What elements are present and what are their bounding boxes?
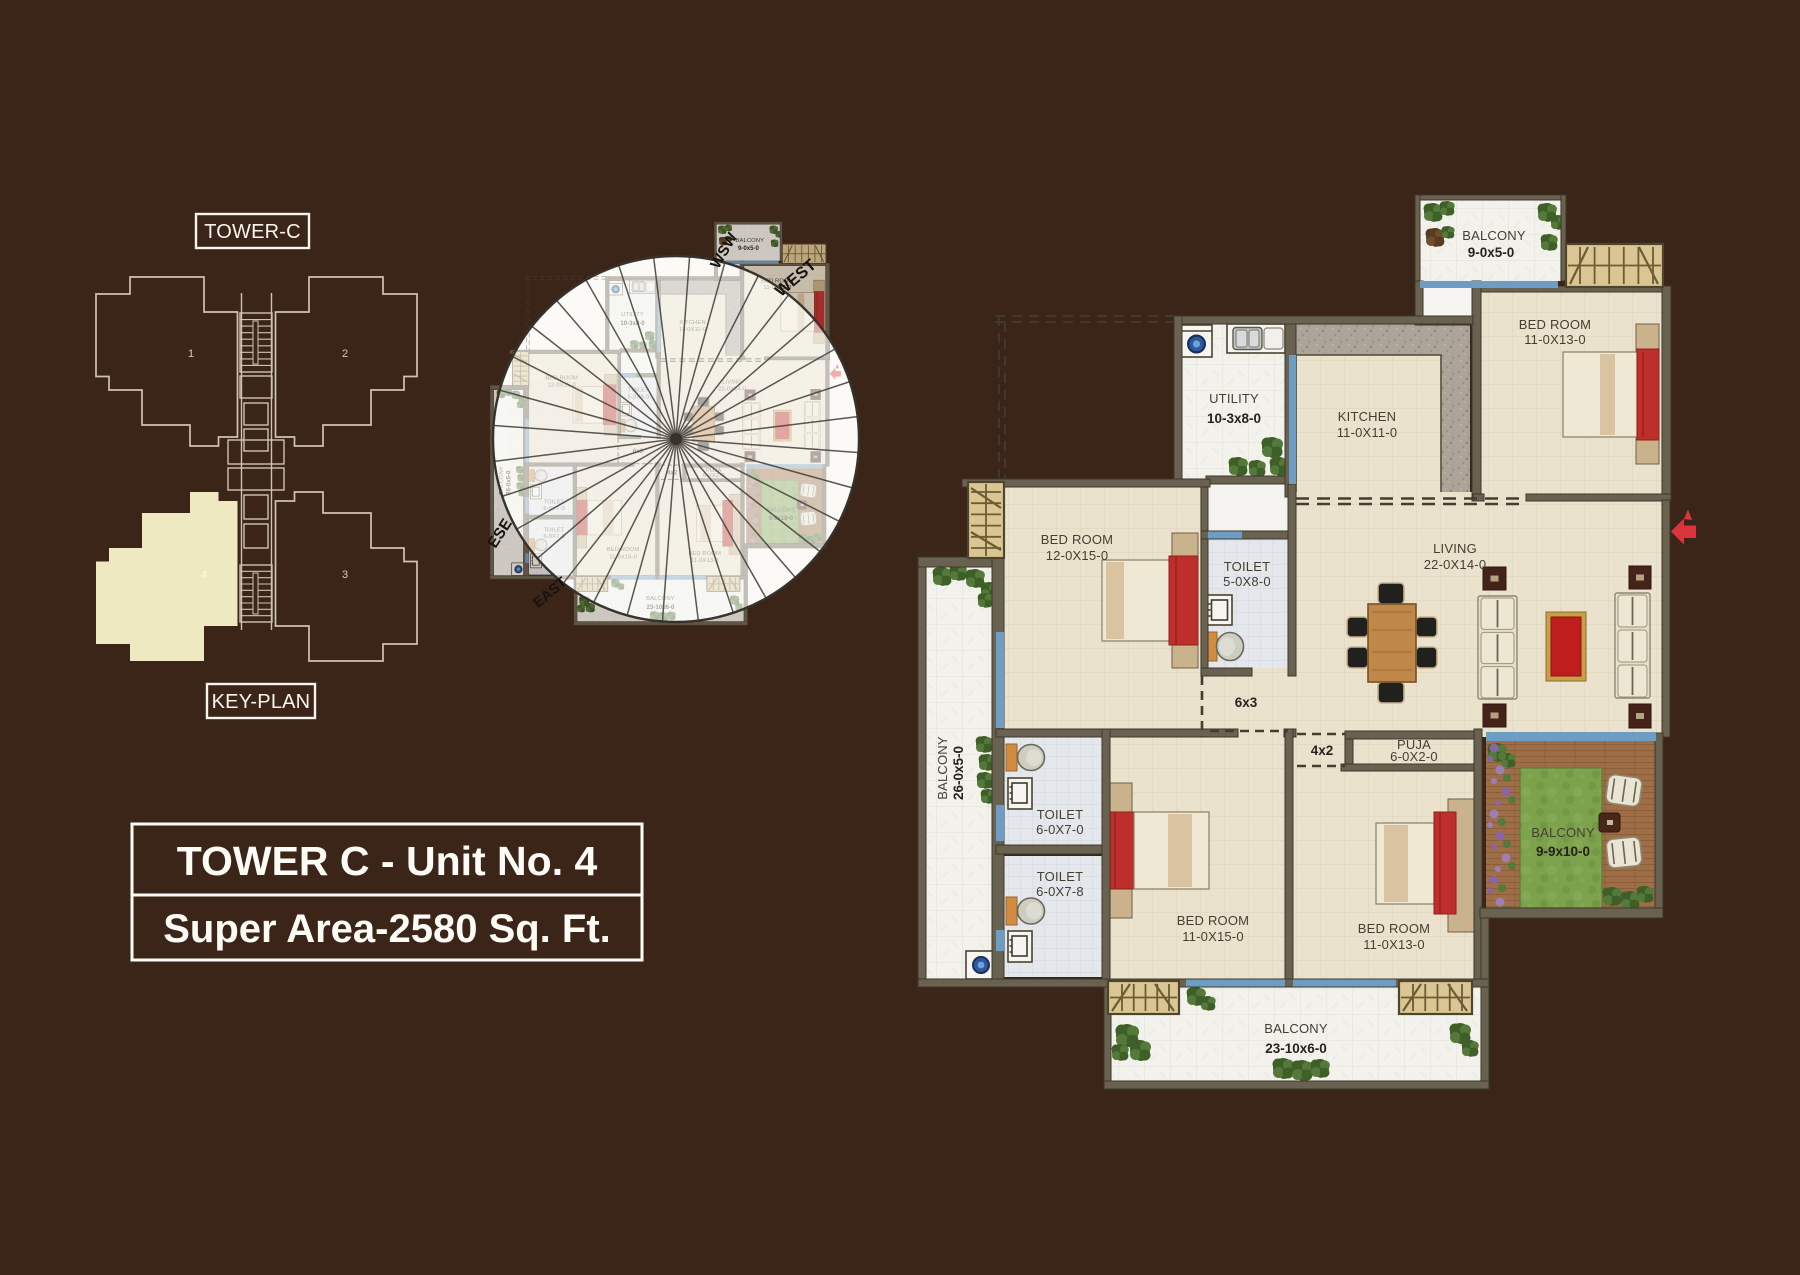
svg-text:11-0X15-0: 11-0X15-0 [1182,929,1244,944]
svg-text:22-0X14-0: 22-0X14-0 [1424,557,1487,572]
svg-text:26-0x5-0: 26-0x5-0 [951,746,966,800]
svg-text:UTILITY: UTILITY [1209,391,1259,406]
svg-text:BED ROOM: BED ROOM [1177,913,1249,928]
svg-text:KITCHEN: KITCHEN [1338,409,1396,424]
svg-text:11-0X13-0: 11-0X13-0 [1524,332,1586,347]
svg-text:6-0X7-8: 6-0X7-8 [1036,884,1084,899]
svg-text:KEY-PLAN: KEY-PLAN [212,691,311,713]
svg-text:BALCONY: BALCONY [1462,228,1526,243]
svg-text:BALCONY: BALCONY [1531,825,1595,840]
svg-text:4: 4 [201,569,207,581]
svg-text:Super Area-2580 Sq. Ft.: Super Area-2580 Sq. Ft. [163,907,611,951]
svg-text:9-9x10-0: 9-9x10-0 [1536,844,1590,859]
svg-text:4x2: 4x2 [1311,743,1334,758]
svg-text:2: 2 [342,348,348,360]
svg-text:TOILET: TOILET [1037,869,1083,884]
svg-text:6-0X7-0: 6-0X7-0 [1036,822,1084,837]
svg-text:TOILET: TOILET [1224,559,1270,574]
svg-text:BED ROOM: BED ROOM [1041,532,1113,547]
svg-text:1: 1 [188,348,194,360]
svg-text:LIVING: LIVING [1433,541,1477,556]
svg-text:10-3x8-0: 10-3x8-0 [1207,411,1261,426]
svg-text:TOILET: TOILET [1037,807,1083,822]
svg-text:9-0x5-0: 9-0x5-0 [1468,245,1515,260]
svg-text:6x3: 6x3 [1235,695,1258,710]
svg-text:TOWER C - Unit No. 4: TOWER C - Unit No. 4 [177,838,598,884]
svg-text:3: 3 [342,569,348,581]
svg-text:11-0X11-0: 11-0X11-0 [1337,425,1398,440]
svg-text:TOWER-C: TOWER-C [204,221,301,243]
svg-text:BALCONY: BALCONY [935,736,950,800]
svg-text:BED ROOM: BED ROOM [1358,921,1430,936]
svg-text:BALCONY: BALCONY [1264,1021,1328,1036]
svg-text:23-10x6-0: 23-10x6-0 [1265,1041,1327,1056]
svg-text:5-0X8-0: 5-0X8-0 [1223,574,1271,589]
svg-text:11-0X13-0: 11-0X13-0 [1363,937,1425,952]
svg-text:6-0X2-0: 6-0X2-0 [1390,749,1438,764]
svg-text:12-0X15-0: 12-0X15-0 [1046,548,1109,563]
svg-text:BED ROOM: BED ROOM [1519,317,1591,332]
